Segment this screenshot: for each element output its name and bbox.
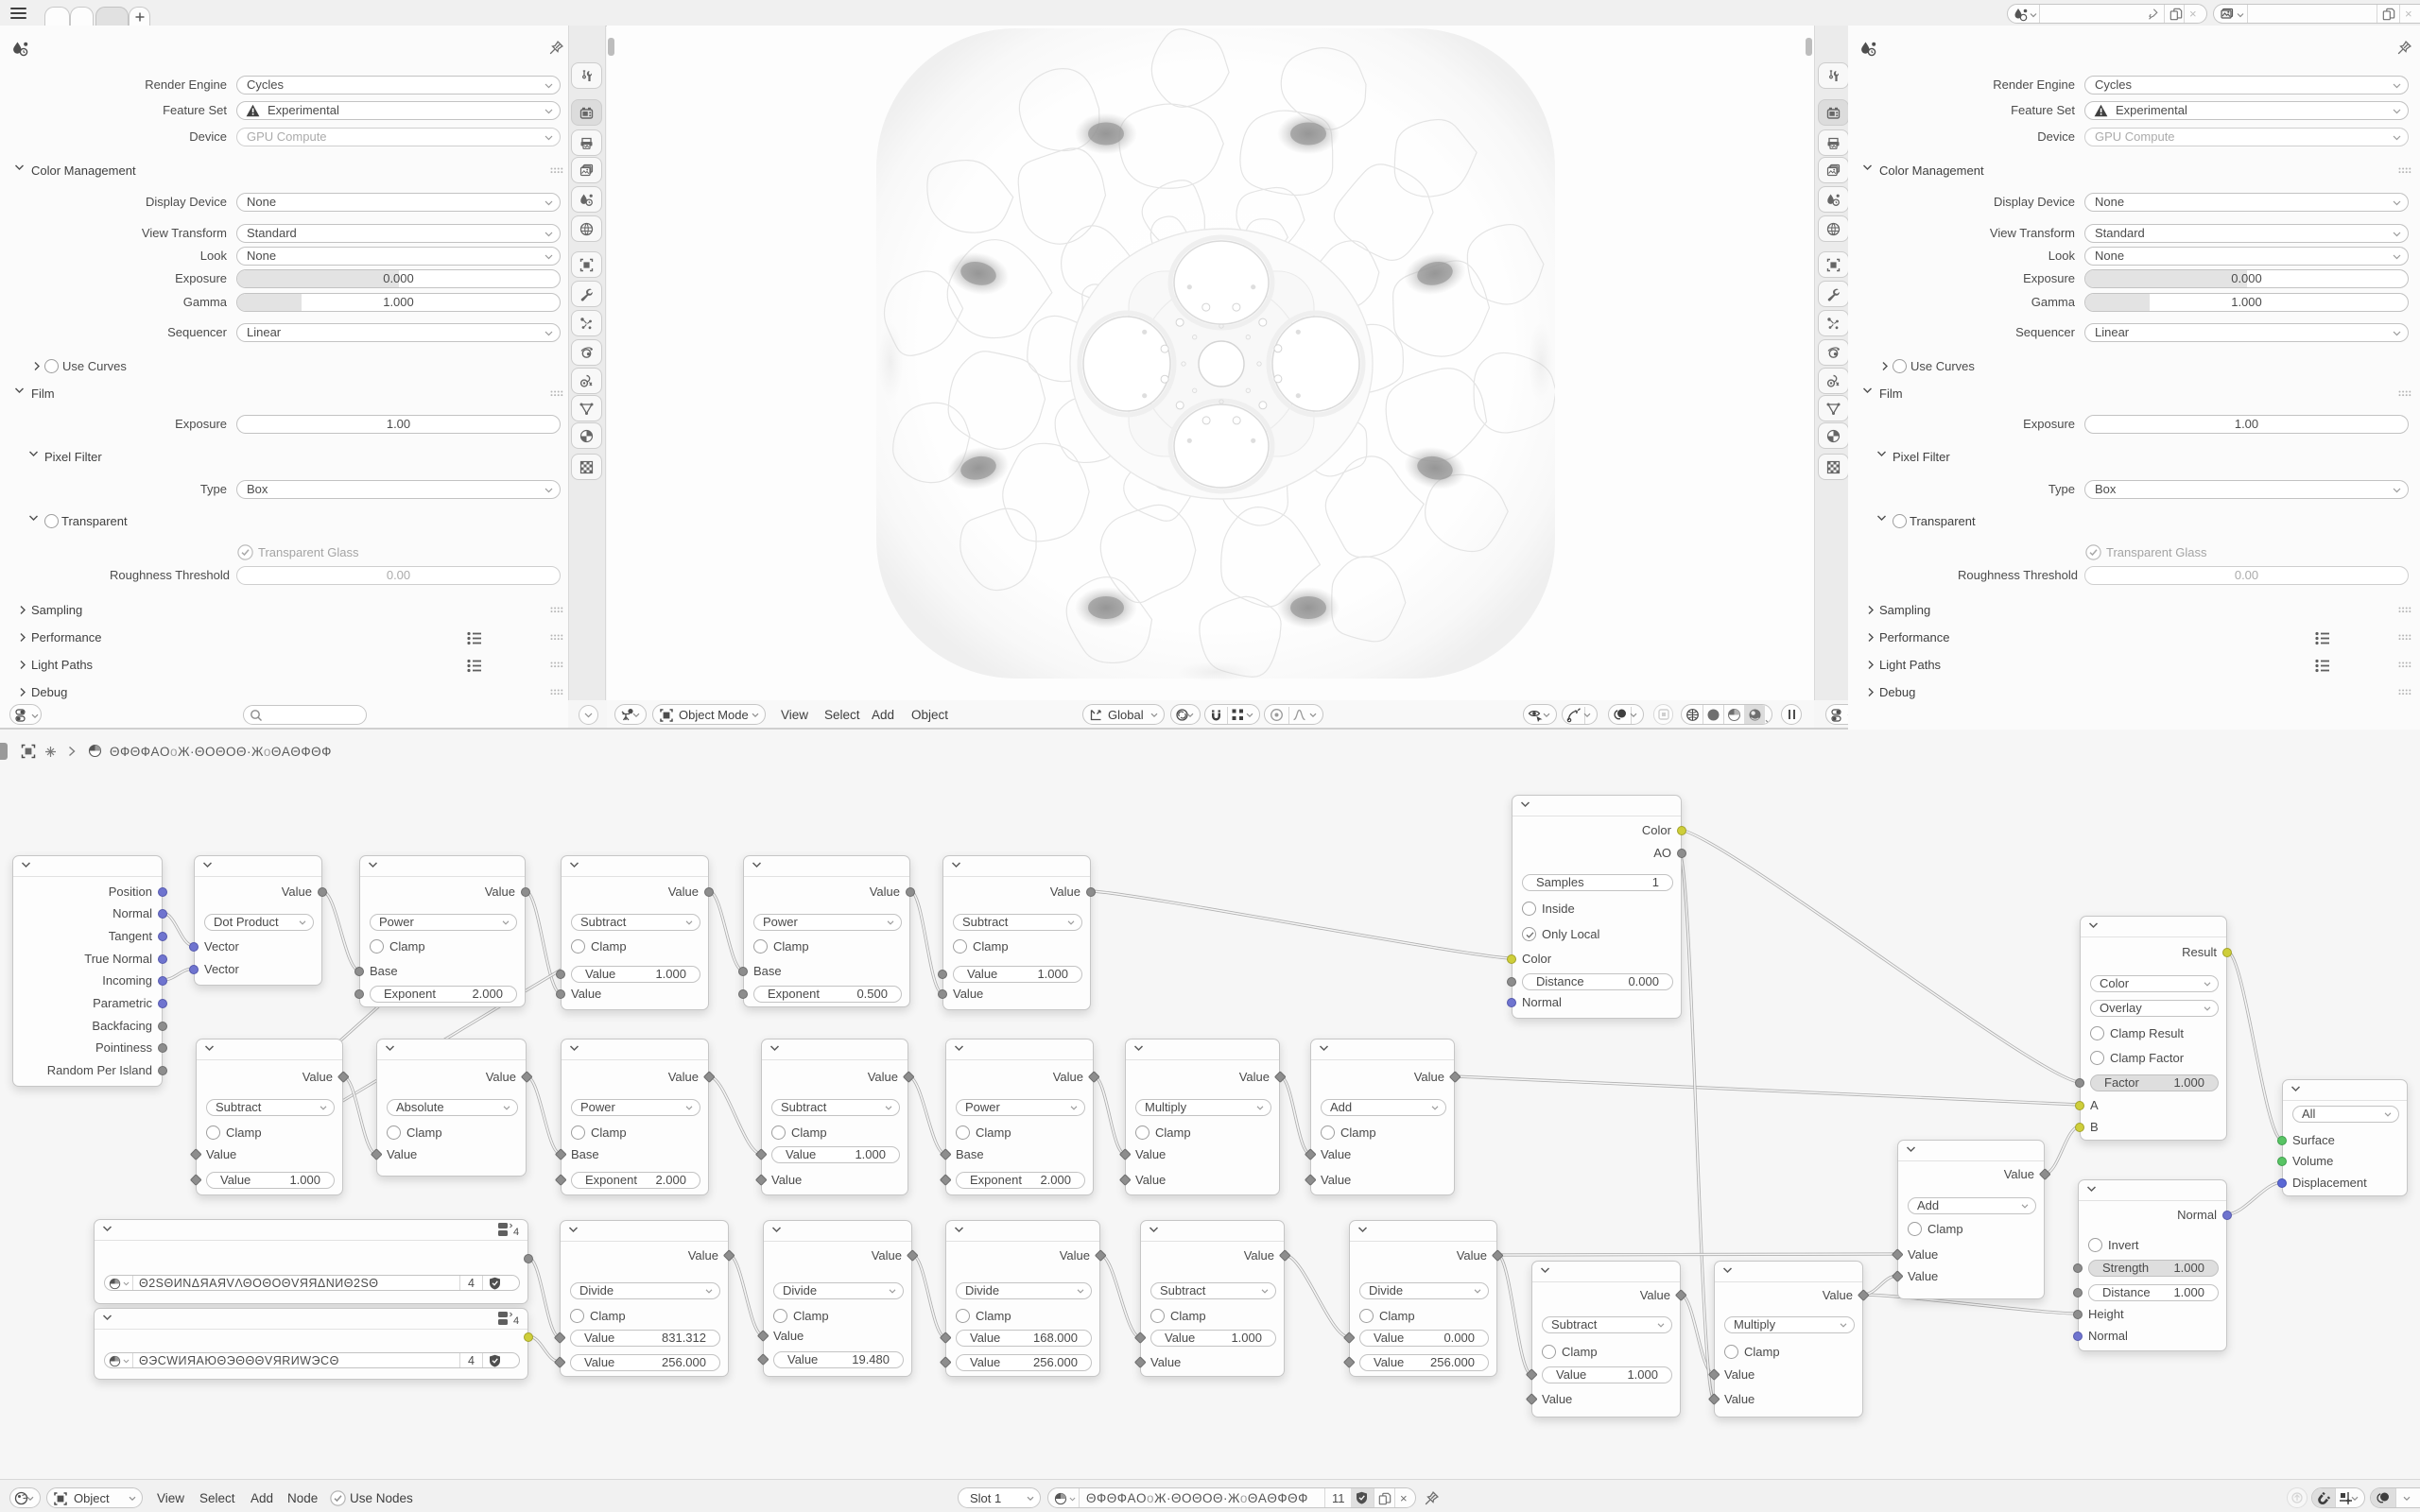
svg-text:4: 4: [513, 1227, 519, 1238]
svg-text:4: 4: [513, 1315, 519, 1327]
